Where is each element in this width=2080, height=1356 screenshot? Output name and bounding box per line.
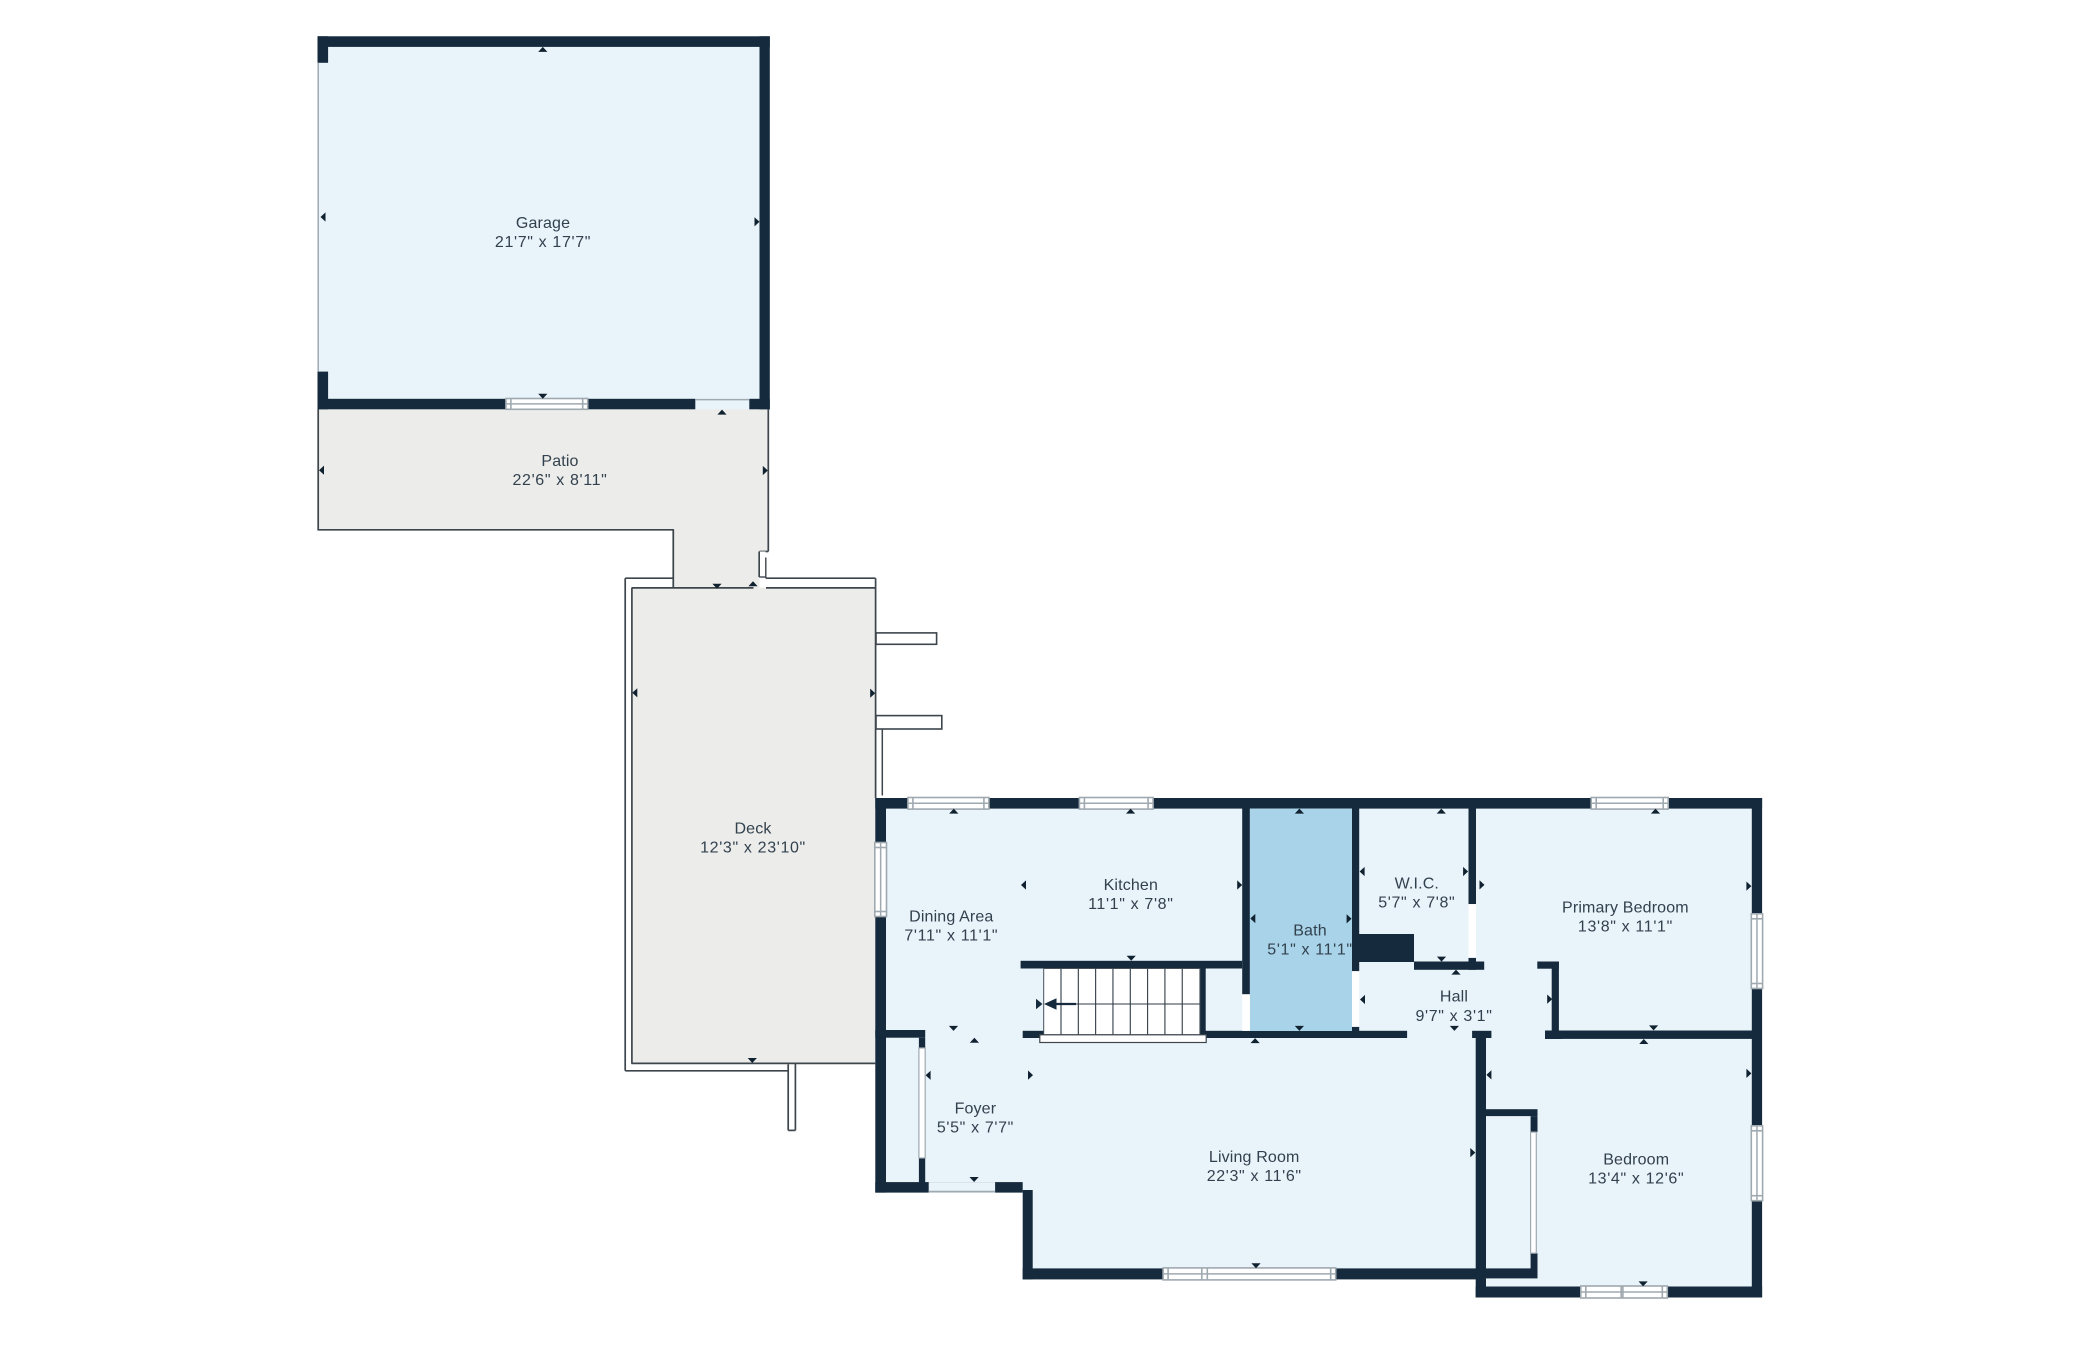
svg-text:13'4" x 12'6": 13'4" x 12'6" [1588, 1171, 1684, 1188]
svg-text:Bath: Bath [1293, 923, 1327, 940]
svg-text:9'7" x 3'1": 9'7" x 3'1" [1415, 1008, 1492, 1025]
svg-text:11'1" x 7'8": 11'1" x 7'8" [1088, 896, 1173, 913]
svg-text:Kitchen: Kitchen [1104, 877, 1158, 894]
svg-text:5'7" x 7'8": 5'7" x 7'8" [1378, 895, 1455, 912]
svg-text:21'7" x 17'7": 21'7" x 17'7" [495, 234, 591, 251]
svg-text:22'6" x 8'11": 22'6" x 8'11" [512, 472, 607, 489]
svg-text:5'5" x 7'7": 5'5" x 7'7" [937, 1120, 1014, 1137]
svg-text:Hall: Hall [1440, 989, 1468, 1006]
svg-text:W.I.C.: W.I.C. [1395, 876, 1439, 893]
svg-text:Bedroom: Bedroom [1603, 1151, 1669, 1168]
svg-text:Primary Bedroom: Primary Bedroom [1562, 900, 1689, 917]
svg-text:7'11" x 11'1": 7'11" x 11'1" [904, 928, 998, 945]
svg-text:Living Room: Living Room [1209, 1149, 1300, 1166]
svg-text:12'3" x 23'10": 12'3" x 23'10" [700, 840, 806, 857]
svg-text:5'1" x 11'1": 5'1" x 11'1" [1267, 942, 1352, 959]
svg-text:22'3" x 11'6": 22'3" x 11'6" [1207, 1168, 1302, 1185]
svg-text:Foyer: Foyer [955, 1101, 997, 1118]
svg-text:Patio: Patio [541, 453, 578, 470]
svg-text:Dining Area: Dining Area [909, 909, 993, 926]
svg-text:Garage: Garage [516, 215, 570, 232]
svg-text:Deck: Deck [734, 821, 772, 838]
svg-text:13'8" x 11'1": 13'8" x 11'1" [1578, 919, 1673, 936]
